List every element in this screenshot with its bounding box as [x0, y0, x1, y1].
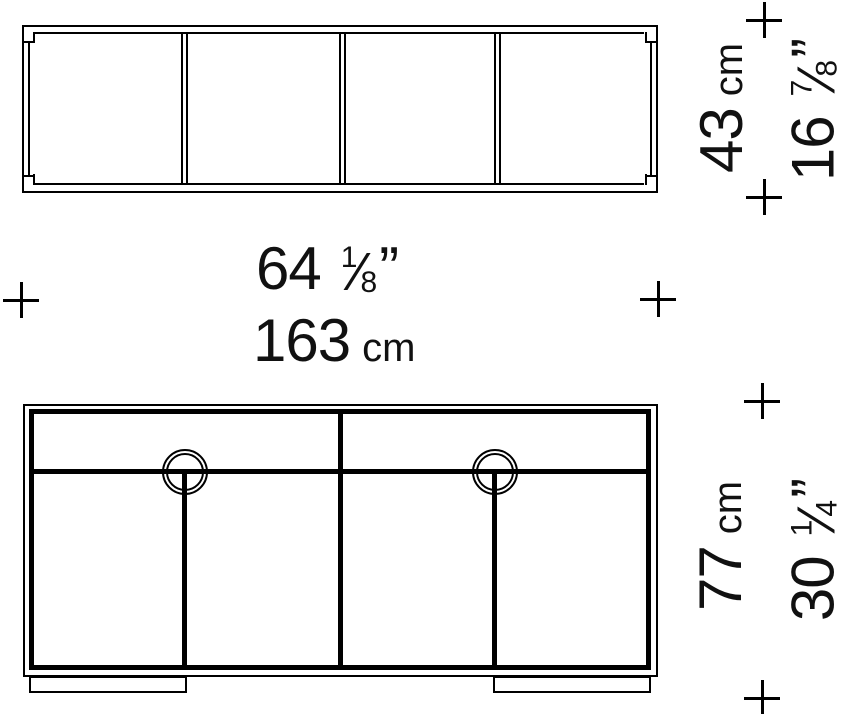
left-door-divider-line: [182, 474, 187, 665]
corner-step: [646, 175, 658, 177]
depth-inches-value: 16: [780, 116, 843, 181]
top-view-left-side-line: [28, 42, 30, 176]
inch-mark: ”: [780, 39, 843, 58]
depth-inches-label: 167⁄8”: [769, 23, 843, 198]
height-cm-label: 77cm: [687, 471, 757, 621]
width-inches-fraction: 1⁄8: [341, 235, 377, 302]
registration-cross-icon: [744, 383, 780, 419]
registration-cross-icon: [640, 281, 676, 317]
right-foot: [493, 676, 651, 693]
top-view-partition-line: [494, 32, 496, 185]
width-inches-value: 64: [256, 235, 321, 302]
inch-mark: ”: [780, 479, 843, 498]
inch-mark: ”: [379, 235, 398, 302]
height-inches-label: 301⁄4”: [769, 463, 843, 638]
depth-cm-value: 43: [688, 108, 755, 173]
top-view-partition-line: [344, 32, 346, 185]
top-view-partition-line: [499, 32, 501, 185]
cm-unit: cm: [362, 326, 415, 370]
registration-cross-icon: [3, 282, 39, 318]
width-cm-value: 163: [253, 307, 350, 374]
cm-unit: cm: [706, 481, 750, 534]
height-cm-value: 77: [687, 546, 754, 611]
left-foot: [29, 676, 187, 693]
height-inches-value: 30: [780, 556, 843, 621]
cm-unit: cm: [707, 43, 751, 96]
top-view-partition-line: [181, 32, 183, 185]
width-cm-label: 163cm: [253, 311, 415, 378]
corner-step: [22, 41, 34, 43]
corner-step: [646, 41, 658, 43]
registration-cross-icon: [744, 680, 780, 714]
top-view-right-side-line: [650, 42, 652, 176]
left-handle-inner-ring: [166, 453, 204, 491]
dimension-drawing: 641⁄8” 163cm 43cm 167⁄8” 77cm 301⁄4”: [0, 0, 843, 714]
corner-step: [22, 175, 34, 177]
depth-inches-fraction: 7⁄8: [780, 60, 843, 96]
top-view-partition-line: [186, 32, 188, 185]
right-door-divider-line: [492, 474, 497, 665]
height-inches-fraction: 1⁄4: [780, 500, 843, 536]
right-handle-inner-ring: [476, 453, 514, 491]
width-inches-label: 641⁄8”: [256, 228, 398, 313]
center-divider-line: [338, 414, 343, 665]
top-view-partition-line: [339, 32, 341, 185]
depth-cm-label: 43cm: [688, 33, 758, 183]
